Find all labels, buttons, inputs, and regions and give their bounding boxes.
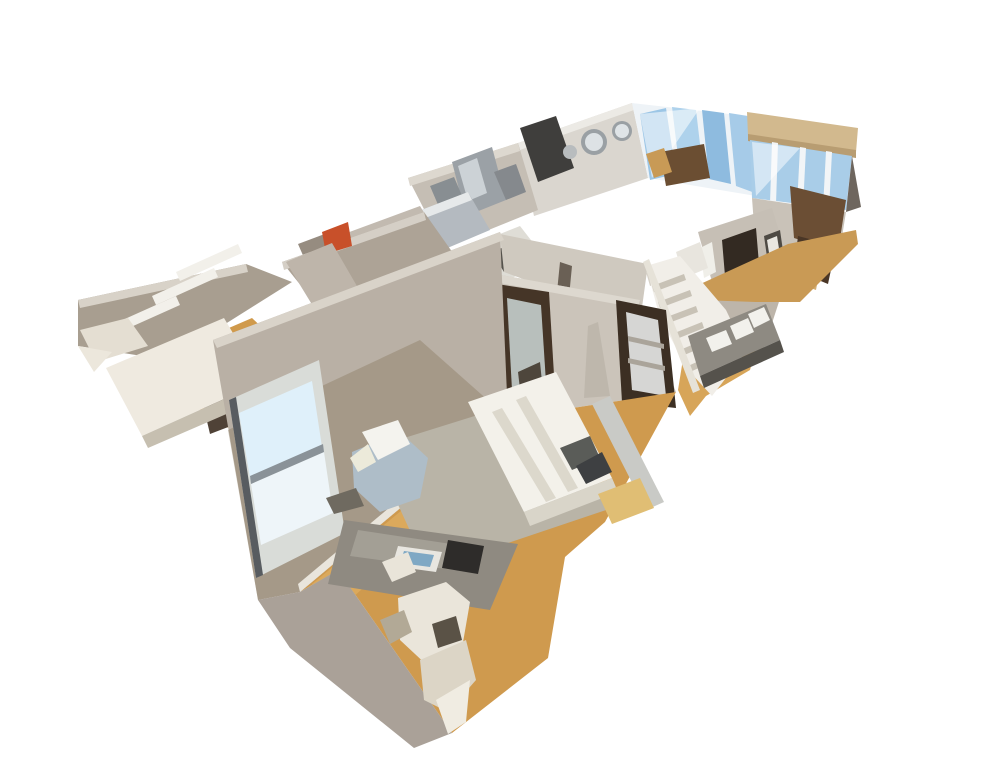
wall-mirror-third [563, 145, 577, 159]
wall-mirror-large-glass [585, 133, 603, 151]
dollhouse-shapes [78, 103, 861, 748]
wall-mirror-small-glass [615, 124, 629, 138]
desk-black-object [442, 540, 484, 574]
dollhouse-model[interactable] [0, 0, 994, 779]
dollhouse-viewport [0, 0, 994, 779]
